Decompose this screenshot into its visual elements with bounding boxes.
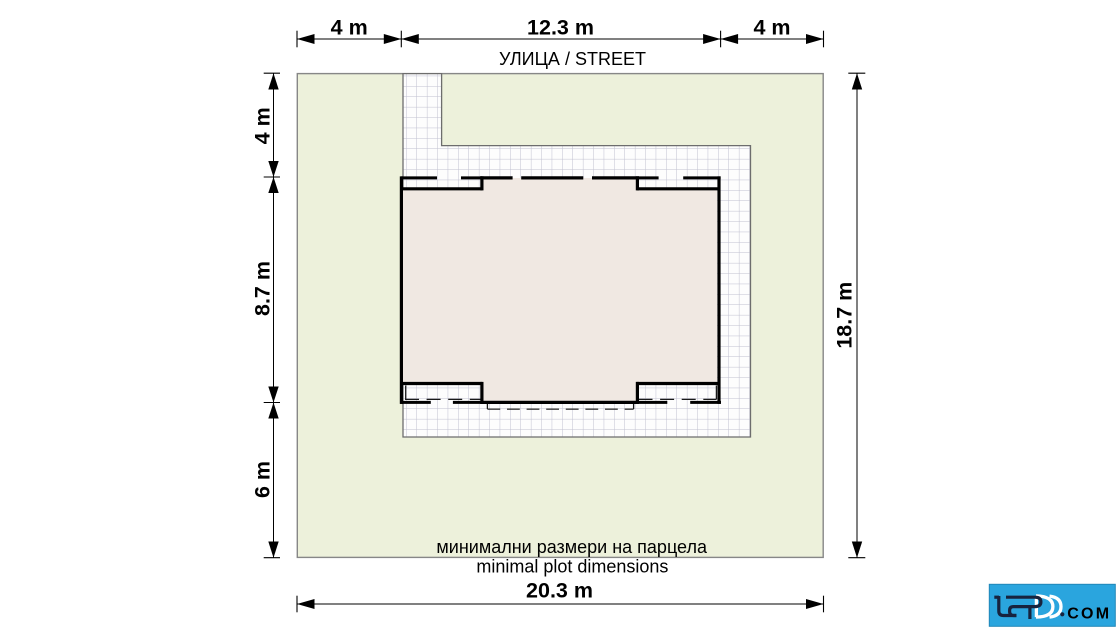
svg-text:18.7 m: 18.7 m: [833, 282, 857, 349]
svg-text:4 m: 4 m: [331, 16, 368, 40]
svg-text:20.3 m: 20.3 m: [526, 579, 593, 603]
svg-text:8.7 m: 8.7 m: [250, 261, 274, 316]
svg-text:6 m: 6 m: [250, 461, 274, 498]
svg-text:12.3 m: 12.3 m: [527, 16, 594, 40]
svg-text:УЛИЦА / STREET: УЛИЦА / STREET: [499, 49, 646, 69]
svg-text:minimal plot dimensions: minimal plot dimensions: [476, 557, 668, 577]
svg-text:минимални размери на парцела: минимални размери на парцела: [436, 537, 708, 557]
svg-text:4 m: 4 m: [250, 107, 274, 144]
svg-text:4 m: 4 m: [753, 16, 790, 40]
svg-text:COM: COM: [1067, 605, 1111, 622]
